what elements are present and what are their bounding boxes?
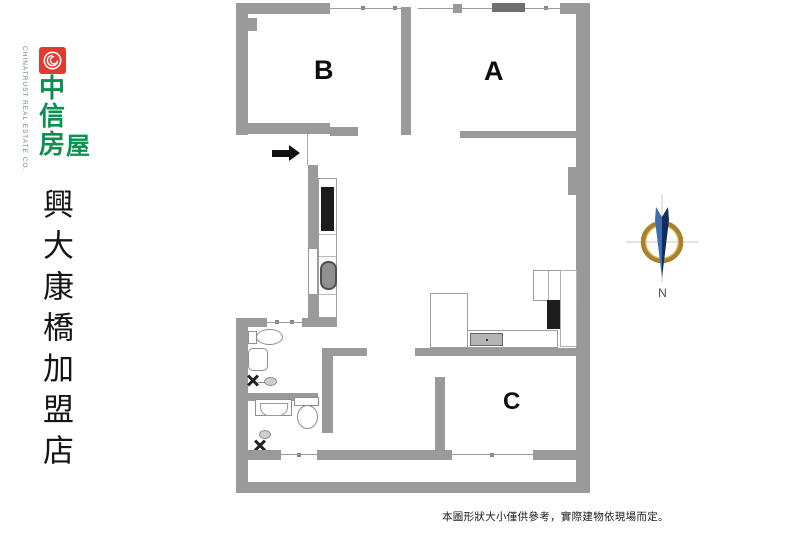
cabinet-divider (319, 234, 336, 235)
company-logo (39, 47, 66, 74)
window-tick (275, 320, 279, 324)
cabinet-symbol (560, 270, 577, 347)
room-label-a: A (484, 58, 504, 85)
compass: N (620, 190, 705, 310)
wall-balcony (533, 450, 578, 460)
company-name-char: 屋 (63, 135, 93, 159)
bathtub-symbol (248, 348, 268, 371)
exhaust-fan-symbol (264, 377, 277, 386)
cabinet-divider (319, 256, 336, 257)
counter-symbol (430, 293, 468, 348)
window-tick (361, 6, 365, 10)
kitchen-sink-symbol (470, 333, 503, 346)
wall-right (576, 3, 590, 493)
oven-symbol (547, 300, 561, 329)
window-tick (544, 6, 548, 10)
wall-shaft (568, 167, 576, 195)
window-tick (393, 6, 397, 10)
window (330, 3, 405, 14)
sink-drain (486, 339, 488, 341)
branch-name: 興大康橋加盟店 (33, 188, 78, 475)
washbasin-symbol (255, 399, 292, 416)
wall-kitchen-bottom (415, 348, 578, 356)
wall-bath-right (322, 348, 333, 433)
window (418, 3, 453, 14)
wall-roomB-bottom (240, 123, 330, 134)
stove-symbol (320, 261, 337, 290)
compass-rose-icon (620, 190, 705, 286)
toilet-symbol (297, 405, 318, 429)
toilet-symbol (256, 329, 283, 345)
company-name-char: 信 (37, 103, 67, 129)
wall-balcony (236, 450, 281, 460)
room-label-b: B (314, 57, 334, 84)
wall-roomC-left (435, 377, 445, 450)
wall-top-left (236, 3, 330, 14)
entry-arrow-icon (289, 145, 300, 161)
wall-left-upper (236, 3, 248, 135)
company-subtitle: CHINATRUST REAL ESTATE CO. (21, 46, 28, 171)
floor-plan: B A C (236, 3, 590, 493)
room-label-c: C (503, 390, 520, 414)
north-label: N (620, 286, 705, 300)
window-tick (290, 320, 294, 324)
bath-door-window (267, 318, 302, 327)
wall-pier (453, 4, 462, 13)
cabinet-divider (319, 294, 336, 295)
window-tick (297, 453, 301, 457)
cabinet-divider (548, 271, 549, 300)
window (281, 450, 317, 460)
rose-icon (39, 47, 66, 74)
flyer-canvas: CHINATRUST REAL ESTATE CO. 中 信 房 屋 興大康橋加… (0, 0, 800, 553)
hallway-opening (308, 248, 318, 295)
company-name-char: 中 (37, 75, 67, 101)
window (452, 450, 533, 460)
refrigerator-symbol (321, 187, 334, 231)
exhaust-fan-symbol (259, 430, 271, 439)
wall-balcony (317, 450, 452, 460)
window-tick (490, 453, 494, 457)
wall-left-lower (236, 318, 248, 493)
wall-dark-segment (492, 3, 525, 12)
entry-door-line (307, 134, 308, 165)
wall-roomA-bottom (460, 131, 590, 138)
wall-bottom (236, 482, 590, 493)
window (462, 3, 492, 14)
wall-roomB-bottom-ext (330, 127, 358, 136)
washbasin-bowl (260, 403, 288, 416)
wall-hallway (308, 165, 318, 318)
entry-arrow-icon (272, 150, 289, 157)
window (525, 3, 560, 14)
wall-notch (248, 18, 257, 31)
wall-divider-AB (401, 7, 411, 135)
disclaimer-text: 本圖形狀大小僅供參考，實際建物依現場而定。 (442, 509, 669, 524)
wall-bath-arm (322, 348, 367, 356)
